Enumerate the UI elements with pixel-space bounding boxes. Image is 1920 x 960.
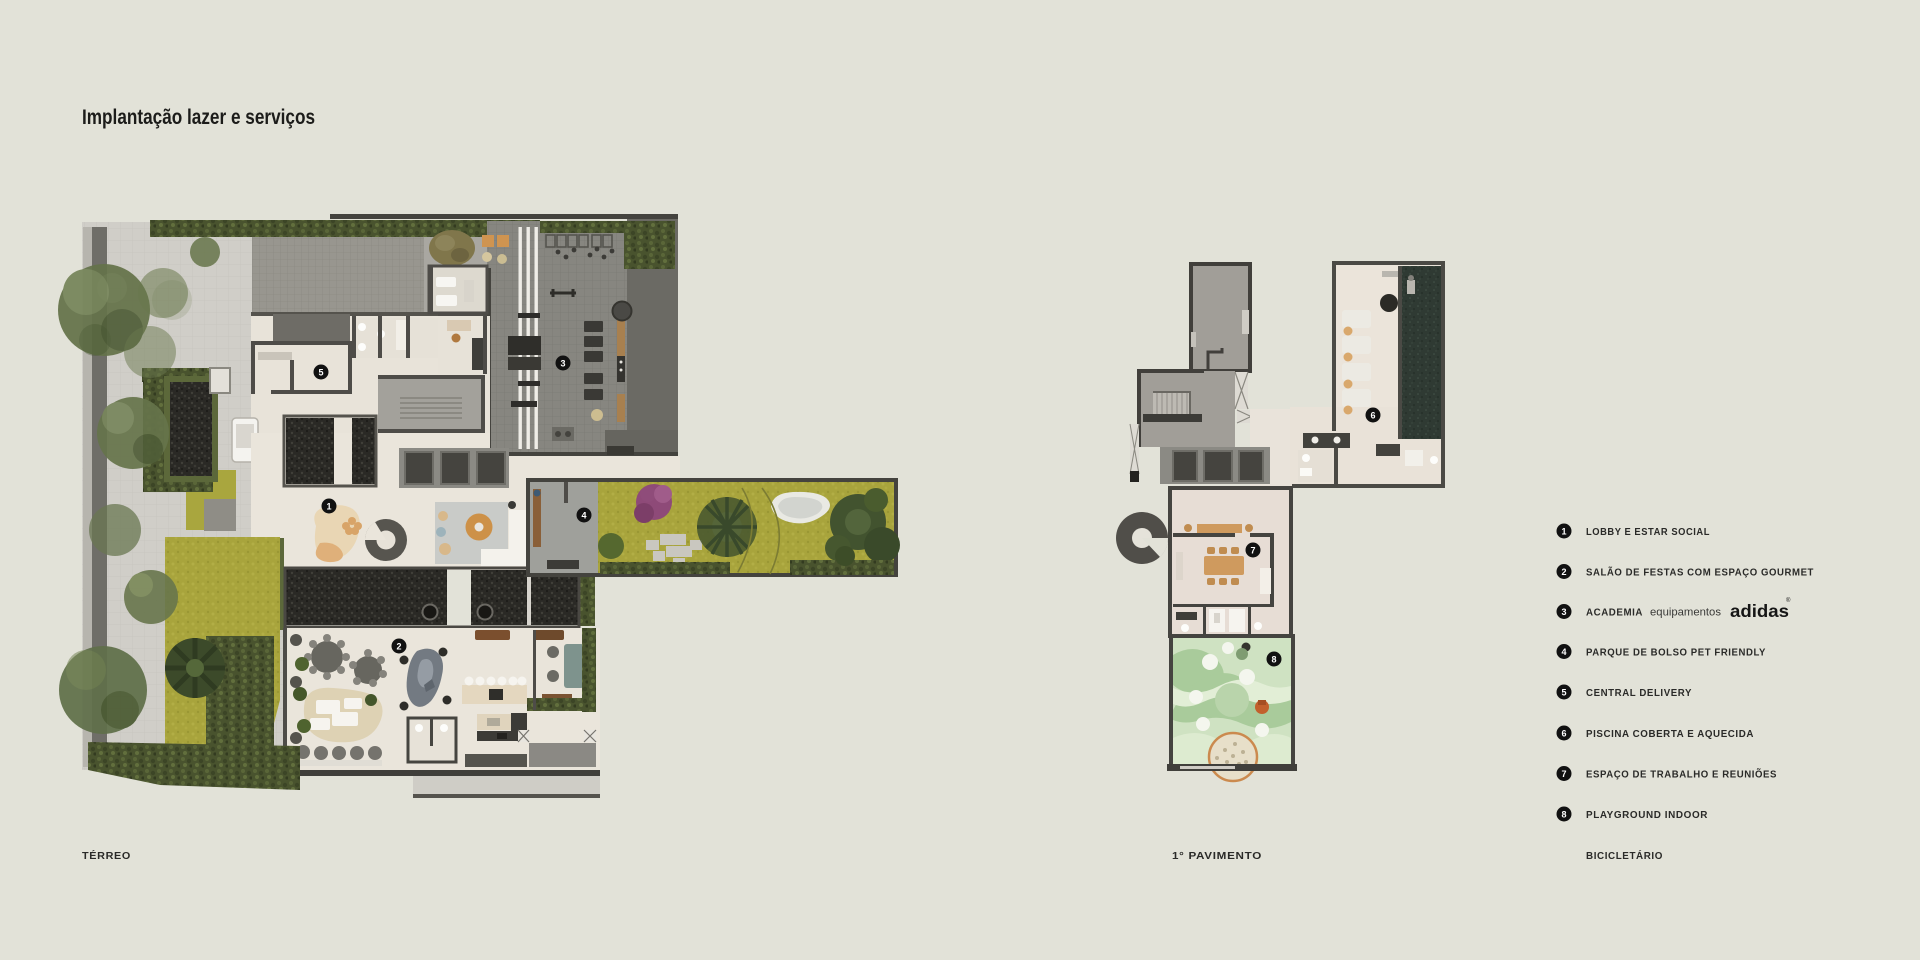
svg-text:7: 7 [1561, 769, 1566, 779]
svg-text:®: ® [1786, 597, 1791, 604]
svg-text:ESPAÇO DE TRABALHO E REUNIÕES: ESPAÇO DE TRABALHO E REUNIÕES [1586, 768, 1777, 781]
svg-text:BICICLETÁRIO: BICICLETÁRIO [1586, 849, 1663, 862]
svg-text:5: 5 [318, 368, 323, 378]
svg-text:6: 6 [1370, 411, 1375, 421]
svg-text:Implantação lazer e serviços: Implantação lazer e serviços [82, 105, 315, 129]
svg-text:CENTRAL DELIVERY: CENTRAL DELIVERY [1586, 688, 1692, 699]
svg-text:PLAYGROUND INDOOR: PLAYGROUND INDOOR [1586, 810, 1708, 821]
svg-text:1° PAVIMENTO: 1° PAVIMENTO [1172, 851, 1262, 862]
svg-text:4: 4 [581, 511, 586, 521]
svg-text:LOBBY E ESTAR SOCIAL: LOBBY E ESTAR SOCIAL [1586, 527, 1710, 538]
svg-text:4: 4 [1561, 647, 1566, 657]
svg-text:3: 3 [560, 359, 565, 369]
svg-text:2: 2 [1561, 567, 1566, 577]
svg-text:3: 3 [1561, 607, 1566, 617]
svg-text:5: 5 [1561, 688, 1566, 698]
svg-text:equipamentos: equipamentos [1650, 607, 1722, 619]
svg-text:PISCINA COBERTA E AQUECIDA: PISCINA COBERTA E AQUECIDA [1586, 729, 1754, 740]
svg-text:adidas: adidas [1730, 601, 1789, 621]
svg-text:8: 8 [1561, 810, 1566, 820]
svg-text:SALÃO DE FESTAS COM ESPAÇO GOU: SALÃO DE FESTAS COM ESPAÇO GOURMET [1586, 566, 1814, 579]
svg-text:2: 2 [396, 642, 401, 652]
svg-text:ACADEMIA: ACADEMIA [1586, 608, 1643, 619]
svg-text:PARQUE DE BOLSO PET FRIENDLY: PARQUE DE BOLSO PET FRIENDLY [1586, 648, 1766, 659]
svg-text:6: 6 [1561, 729, 1566, 739]
svg-text:7: 7 [1250, 546, 1255, 556]
svg-text:1: 1 [1561, 527, 1566, 537]
svg-text:1: 1 [326, 502, 331, 512]
svg-text:8: 8 [1271, 655, 1276, 665]
svg-text:TÉRREO: TÉRREO [82, 849, 131, 862]
